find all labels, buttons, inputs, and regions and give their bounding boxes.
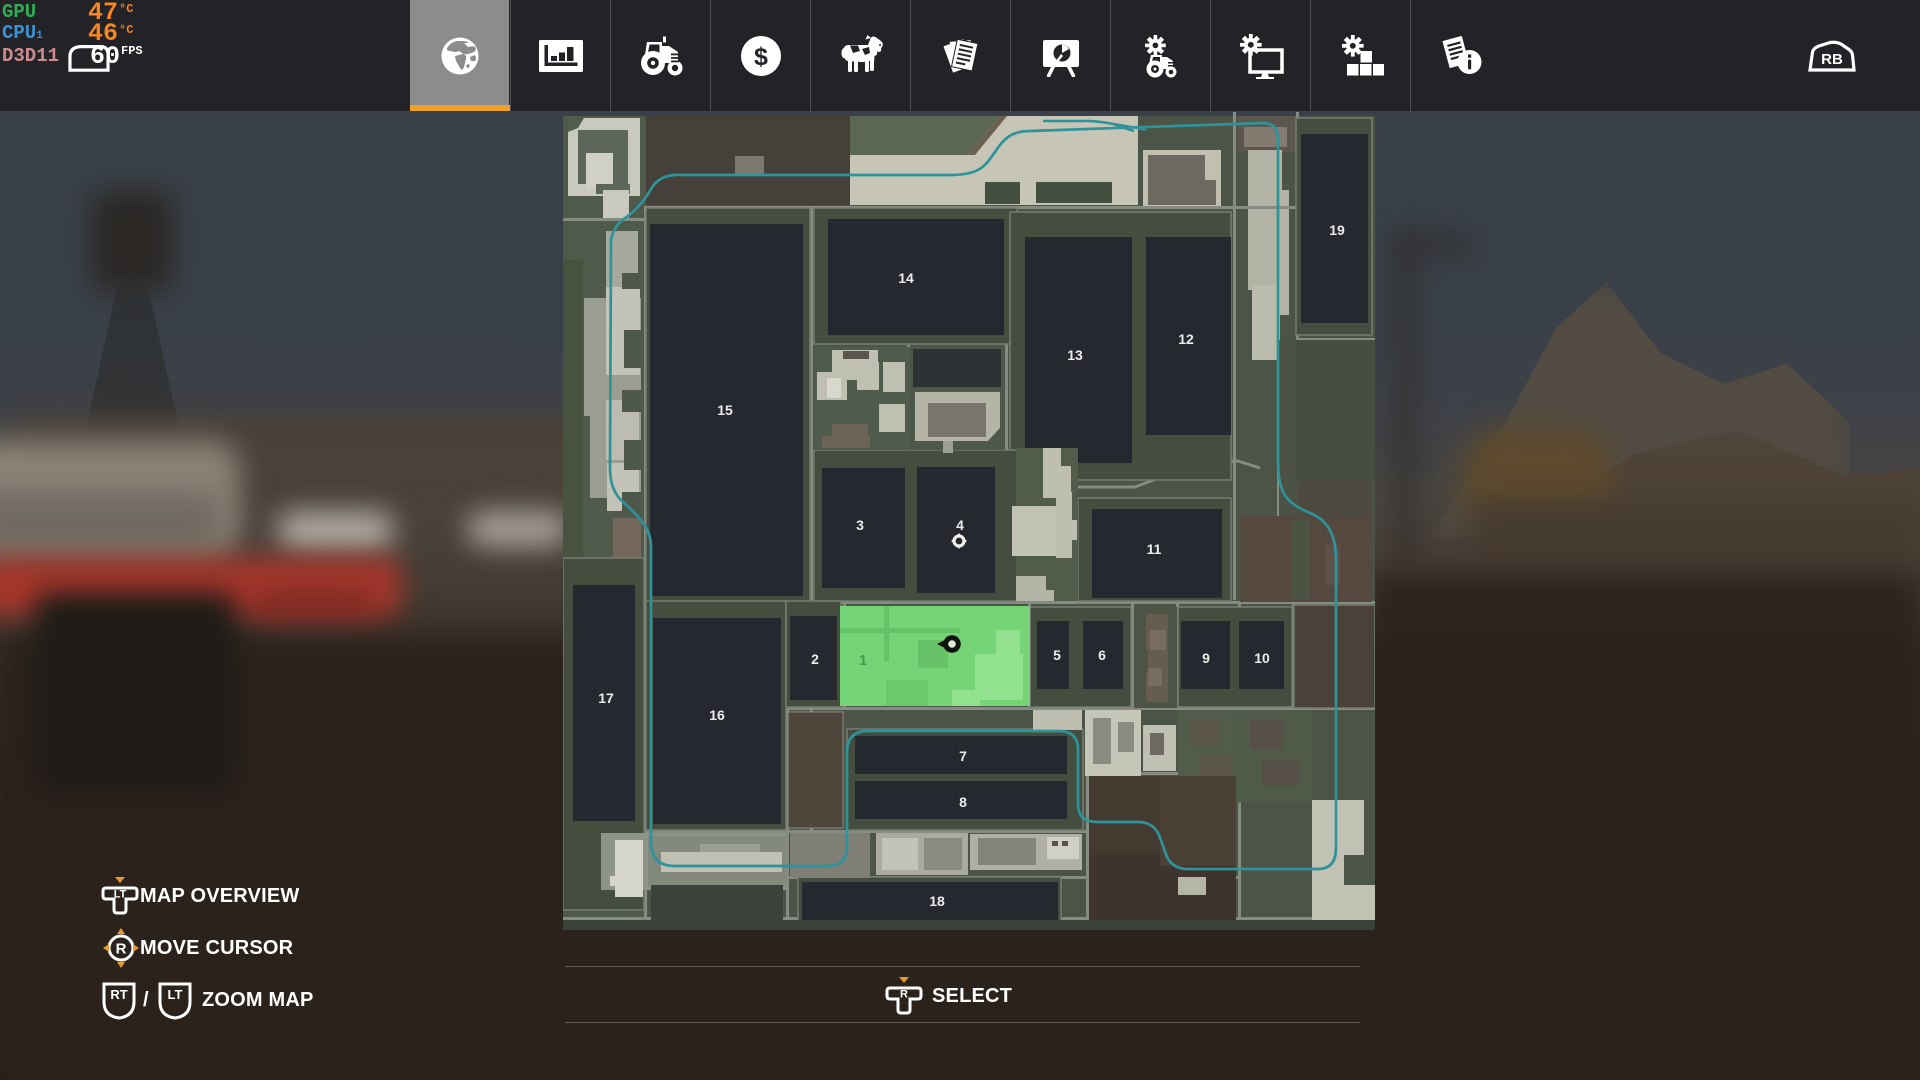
svg-text:8: 8 xyxy=(959,794,967,810)
svg-text:10: 10 xyxy=(1254,650,1270,666)
svg-text:RB: RB xyxy=(1821,51,1843,68)
svg-text:12: 12 xyxy=(1178,331,1194,347)
svg-text:13: 13 xyxy=(1067,347,1083,363)
svg-text:19: 19 xyxy=(1329,222,1345,238)
svg-text:16: 16 xyxy=(709,707,725,723)
svg-text:R: R xyxy=(900,989,908,1001)
svg-text:RT: RT xyxy=(110,987,127,1002)
svg-text:17: 17 xyxy=(598,690,614,706)
svg-text:11: 11 xyxy=(1147,541,1162,557)
svg-text:5: 5 xyxy=(1053,647,1061,663)
svg-text:15: 15 xyxy=(717,402,733,418)
svg-text:4: 4 xyxy=(956,517,964,533)
svg-text:LT: LT xyxy=(168,987,183,1002)
svg-text:3: 3 xyxy=(856,517,864,533)
svg-text:18: 18 xyxy=(929,893,945,909)
svg-text:1: 1 xyxy=(859,652,867,669)
svg-text:R: R xyxy=(116,941,127,958)
svg-text:14: 14 xyxy=(898,270,914,286)
svg-text:$: $ xyxy=(754,43,768,71)
svg-text:LT: LT xyxy=(114,889,127,901)
svg-text:2: 2 xyxy=(811,651,819,667)
svg-text:9: 9 xyxy=(1202,650,1210,666)
svg-text:6: 6 xyxy=(1098,647,1106,663)
svg-text:7: 7 xyxy=(959,748,967,764)
